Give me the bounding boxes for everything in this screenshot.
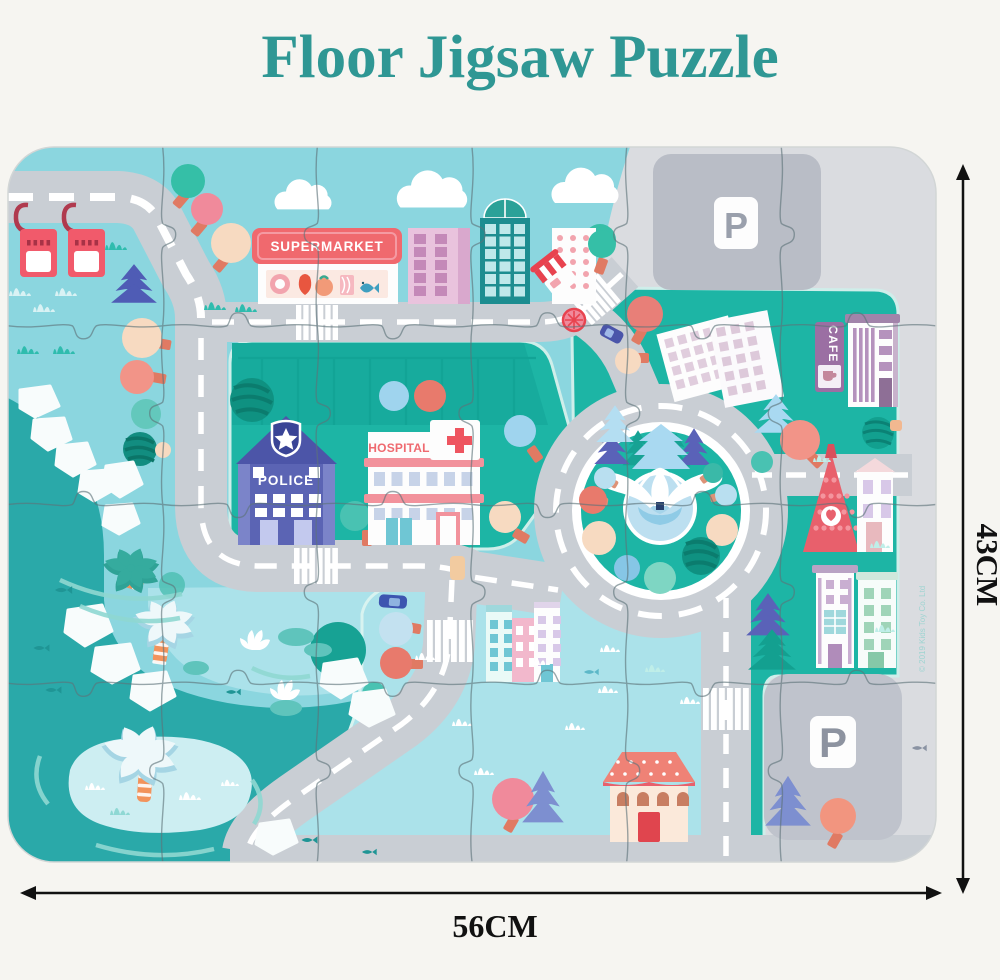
svg-text:Floor Jigsaw Puzzle: Floor Jigsaw Puzzle [261,24,778,91]
svg-text:P: P [724,205,748,246]
svg-text:HOSPITAL: HOSPITAL [368,441,429,455]
svg-text:56CM: 56CM [452,908,537,944]
svg-text:43CM: 43CM [970,524,1000,607]
svg-text:© 2019 Kids Toy Co. Ltd: © 2019 Kids Toy Co. Ltd [918,586,927,672]
svg-text:POLICE: POLICE [258,473,314,488]
svg-text:CAFE: CAFE [826,325,840,362]
svg-text:P: P [819,719,847,766]
svg-text:SUPERMARKET: SUPERMARKET [270,239,383,254]
